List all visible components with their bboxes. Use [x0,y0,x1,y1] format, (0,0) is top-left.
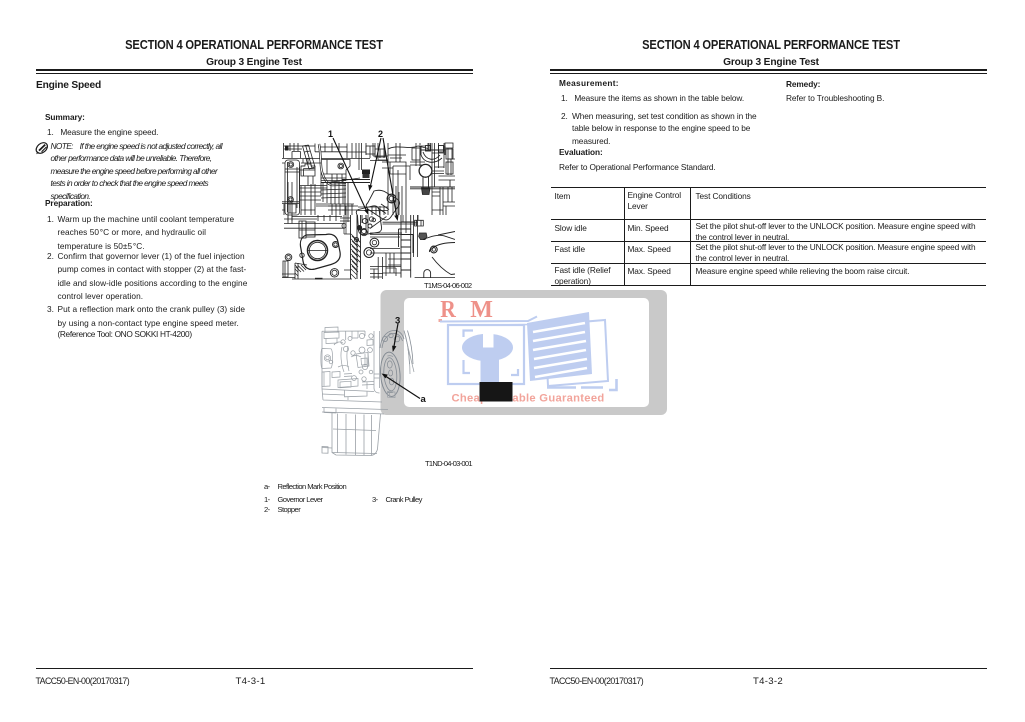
svg-text:Cheap Reliable Guaranteed: Cheap Reliable Guaranteed [452,393,605,405]
svg-text:2: 2 [378,129,383,139]
svg-text:a: a [421,394,427,405]
svg-text:1: 1 [328,129,333,139]
svg-text:M: M [470,297,493,323]
